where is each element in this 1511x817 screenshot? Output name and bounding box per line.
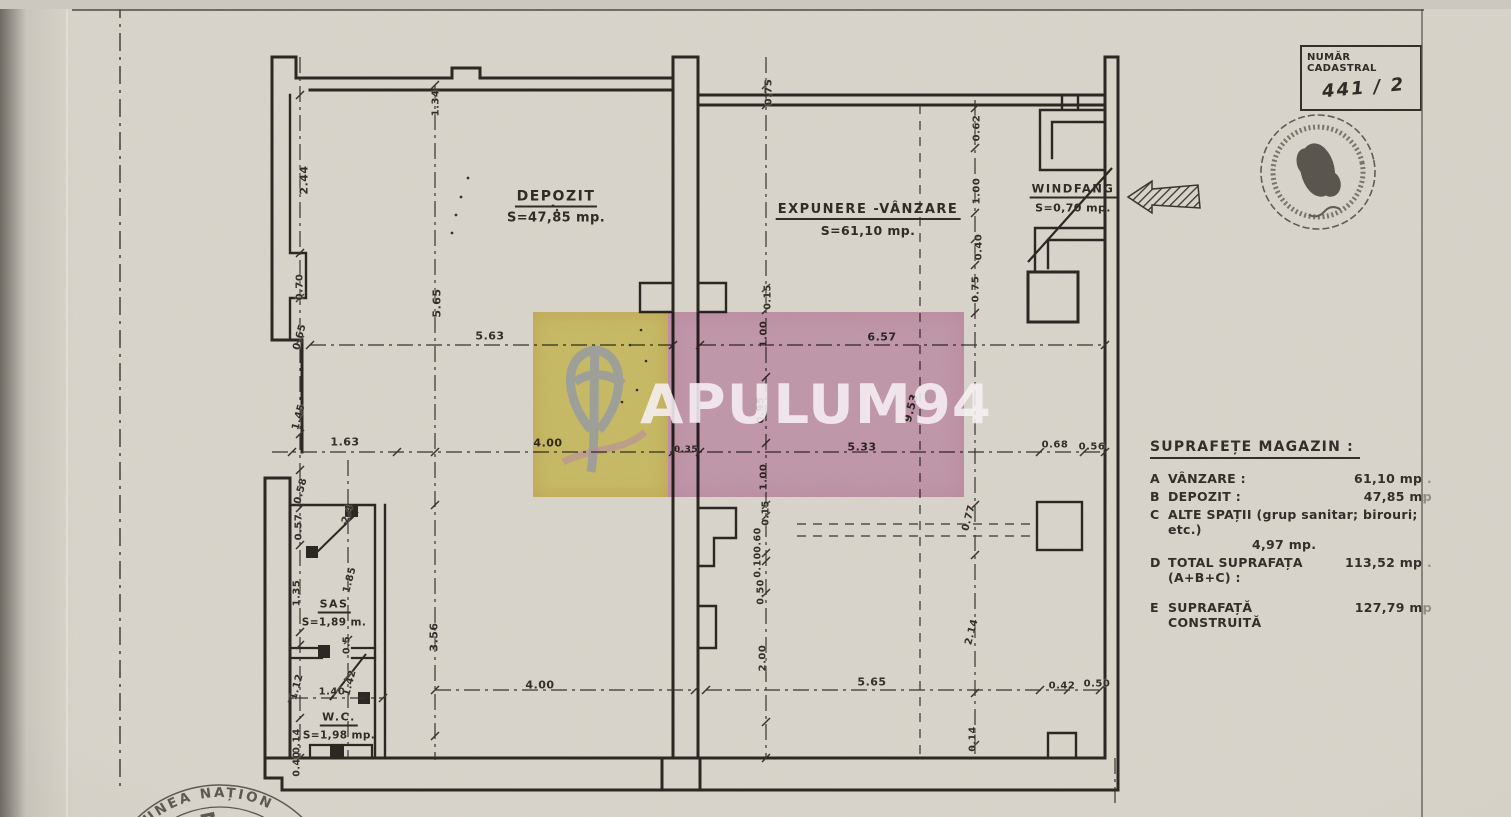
areas-summary: SUPRAFEȚE MAGAZIN : AVÂNZARE :61,10 mp .… [1150, 436, 1432, 630]
walls [265, 57, 1118, 790]
top-wall-right [698, 95, 1105, 105]
scanned-floor-plan-page: ȘTI UNIUNEA NAȚION MI 5.636.571.634.000.… [0, 0, 1511, 817]
page-top-border [72, 9, 1424, 11]
summary-value: 127,79 mp [1349, 600, 1432, 630]
paper-fold-line [66, 0, 68, 817]
left-wall-lower [265, 478, 290, 758]
summary-label: ALTE SPAȚII (grup sanitar; birouri; etc.… [1168, 507, 1432, 537]
bottom-wall [265, 758, 1118, 790]
page-right-border [1421, 9, 1423, 817]
summary-key: D [1150, 555, 1168, 585]
central-wall [673, 57, 698, 758]
drawing-border-line [119, 0, 121, 790]
cadastral-number-value: 441 / 2 [1321, 73, 1420, 102]
summary-value: 61,10 mp . [1348, 471, 1432, 486]
bottom-right-notch [1048, 733, 1076, 758]
scan-top-edge [0, 0, 1511, 9]
ink-speckles [451, 177, 648, 404]
floor-plan-drawing: ȘTI UNIUNEA NAȚION MI [0, 0, 1511, 817]
summary-key: A [1150, 471, 1168, 486]
stamp-inner-text: MI [195, 809, 222, 817]
paper-right-margin [1424, 9, 1511, 817]
summary-row-c: CALTE SPAȚII (grup sanitar; birouri; etc… [1150, 507, 1432, 552]
top-wall-left [296, 57, 673, 90]
right-wall [1105, 57, 1118, 790]
windfang-vestibule-lower [1035, 228, 1105, 272]
summary-row-a: AVÂNZARE :61,10 mp . [1150, 471, 1432, 486]
column-lower [1037, 502, 1082, 550]
door-swings [312, 168, 1112, 700]
central-pilaster-cross [640, 283, 726, 312]
summary-label: DEPOZIT : [1168, 489, 1358, 504]
column-upper [1028, 272, 1078, 322]
summary-row-e: ESUPRAFAȚĂ CONSTRUITĂ127,79 mp [1150, 600, 1432, 630]
areas-summary-title: SUPRAFEȚE MAGAZIN : [1150, 439, 1360, 459]
summary-label: SUPRAFAȚĂ CONSTRUITĂ [1168, 600, 1349, 630]
bottom-pilaster [662, 758, 700, 790]
direction-arrow-icon [1128, 181, 1200, 213]
central-pilaster-steps [698, 508, 736, 648]
left-wall-inner [290, 95, 306, 340]
dimension-lines [272, 57, 1115, 803]
partition-sas-wc [290, 505, 385, 758]
summary-key: B [1150, 489, 1168, 504]
windfang-leader-line [1028, 168, 1112, 262]
summary-row-d: DTOTAL SUPRAFAȚA (A+B+C) :113,52 mp . [1150, 555, 1432, 585]
summary-value: 113,52 mp . [1339, 555, 1432, 585]
cadastral-box-title: NUMĂR CADASTRAL [1307, 52, 1417, 74]
door-jambs [306, 505, 370, 758]
round-stamp-icon [1250, 104, 1385, 239]
cadastral-number-box: NUMĂR CADASTRAL 441 / 2 [1300, 45, 1422, 111]
summary-key: E [1150, 600, 1168, 630]
summary-key: C [1150, 507, 1168, 537]
summary-value: 4,97 mp. [1246, 537, 1316, 552]
summary-label: VÂNZARE : [1168, 471, 1348, 486]
summary-label: TOTAL SUPRAFAȚA (A+B+C) : [1168, 555, 1339, 585]
summary-row-b: BDEPOZIT :47,85 mp [1150, 489, 1432, 504]
